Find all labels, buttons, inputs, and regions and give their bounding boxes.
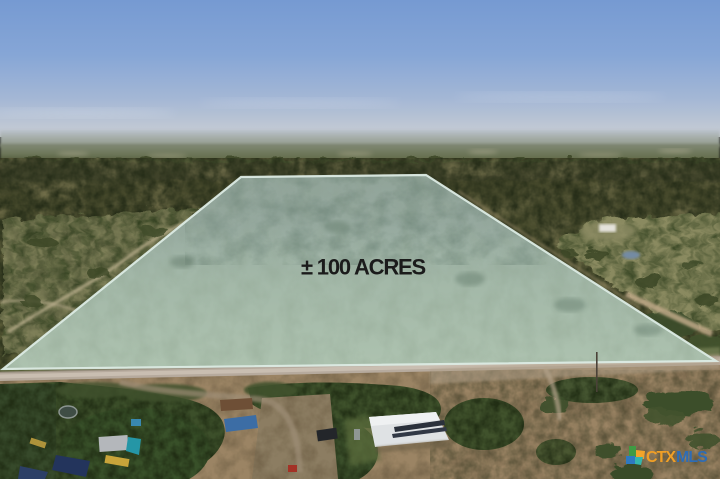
svg-text:± 100 ACRES: ± 100 ACRES <box>301 255 426 280</box>
svg-text:CTX: CTX <box>646 449 676 466</box>
svg-text:MLS: MLS <box>676 449 708 466</box>
